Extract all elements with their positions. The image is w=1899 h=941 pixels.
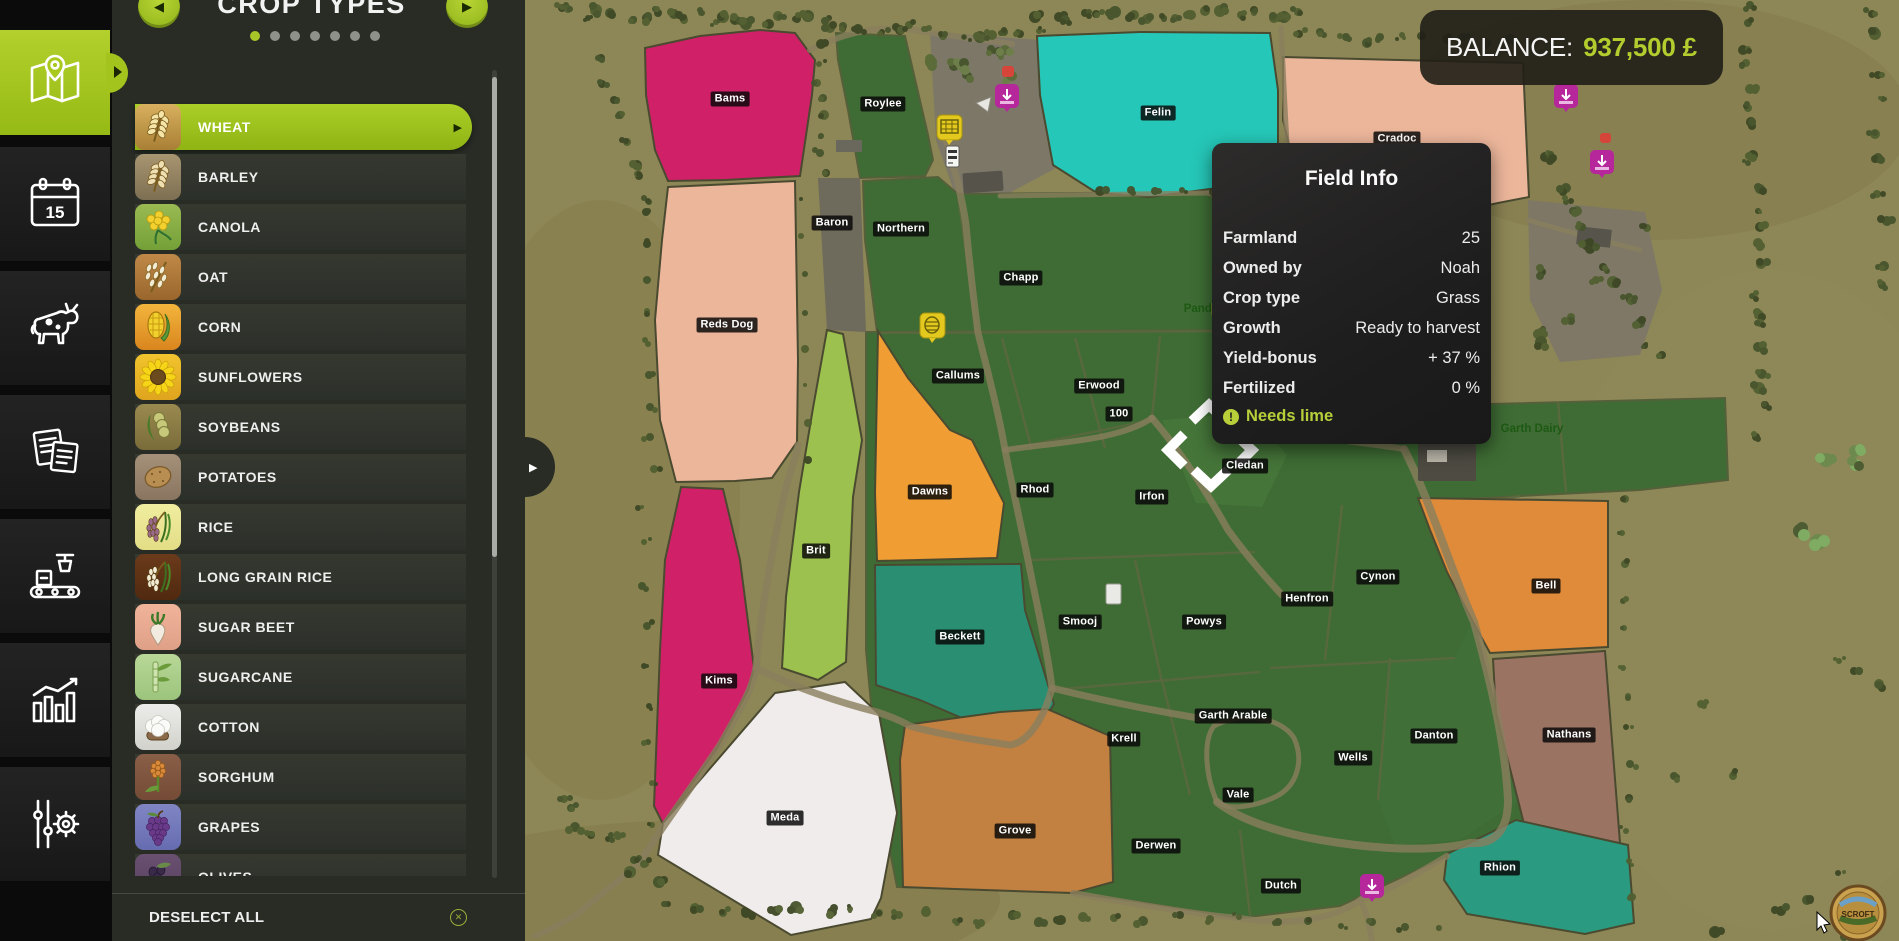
svg-text:SCROFT: SCROFT [1842, 910, 1875, 919]
svg-text:15: 15 [46, 203, 65, 222]
